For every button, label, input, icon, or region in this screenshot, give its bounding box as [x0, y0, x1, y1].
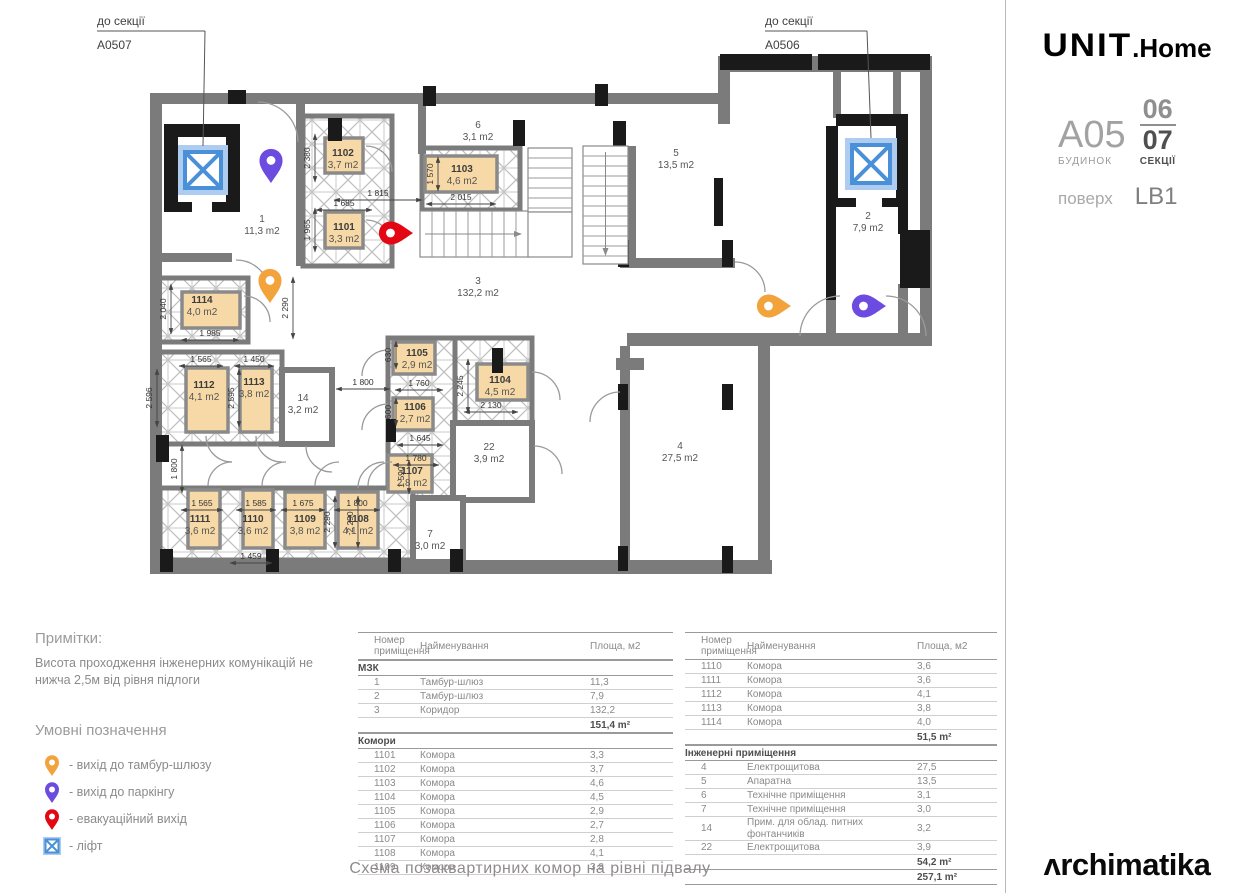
svg-text:13,5 m2: 13,5 m2	[658, 160, 695, 171]
svg-text:3,0 m2: 3,0 m2	[415, 541, 446, 552]
room-label: 427,5 m2	[662, 441, 699, 464]
svg-text:1108: 1108	[347, 514, 369, 525]
svg-text:2,9 m2: 2,9 m2	[402, 360, 433, 371]
table-row: 3Коридор132,2	[358, 704, 673, 718]
svg-text:2 245: 2 245	[455, 375, 465, 397]
table-header: Номер приміщенняНайменуванняПлоща, м2	[358, 632, 673, 660]
legend-item-label: - ліфт	[69, 839, 102, 853]
notes-block: Примітки: Висота проходження інженерних …	[35, 630, 345, 689]
svg-text:1 815: 1 815	[367, 188, 389, 198]
legend-item-tambour: - вихід до тамбур-шлюзу	[35, 751, 335, 778]
room-label: 3132,2 m2	[457, 276, 499, 299]
legend-item-evacuation: - евакуаційний вихід	[35, 805, 335, 832]
table-row: 1102Комора3,7	[358, 763, 673, 777]
svg-text:4,0 m2: 4,0 m2	[187, 307, 218, 318]
svg-text:1 675: 1 675	[292, 498, 314, 508]
svg-text:1 760: 1 760	[408, 378, 430, 388]
table-row: 5Апаратна13,5	[685, 775, 997, 789]
svg-text:5: 5	[673, 148, 679, 159]
rooms-table-left: Номер приміщенняНайменуванняПлоща, м2МЗК…	[358, 632, 673, 875]
svg-text:2 130: 2 130	[480, 400, 502, 410]
svg-text:1113: 1113	[243, 377, 265, 388]
table-row: 1110Комора3,6	[685, 660, 997, 674]
svg-text:1 565: 1 565	[190, 354, 212, 364]
brand-logo: UNIT.Home	[1006, 26, 1247, 66]
svg-text:2 015: 2 015	[450, 192, 472, 202]
svg-text:22: 22	[483, 442, 495, 453]
table-row: 1105Комора2,9	[358, 805, 673, 819]
section-number-bottom: 07	[1140, 126, 1176, 156]
table-total: 51,5 m²	[685, 730, 997, 745]
pin-orange-pin-icon	[258, 269, 281, 303]
svg-text:1 685: 1 685	[333, 198, 355, 208]
table-section: Інженерні приміщення	[685, 745, 997, 761]
svg-text:1: 1	[259, 214, 265, 225]
table-row: 6Технічне приміщення3,1	[685, 789, 997, 803]
building-code: A05	[1058, 116, 1126, 154]
svg-text:1104: 1104	[489, 375, 511, 386]
svg-text:3,8 m2: 3,8 m2	[290, 526, 321, 537]
table-section: МЗК	[358, 660, 673, 676]
table-row: 7Технічне приміщення3,0	[685, 803, 997, 817]
table-row: 1112Комора4,1	[685, 688, 997, 702]
table-row: 22Електрощитова3,9	[685, 841, 997, 855]
table-row: 1113Комора3,8	[685, 702, 997, 716]
table-row: 1114Комора4,0	[685, 716, 997, 730]
svg-text:1106: 1106	[404, 402, 426, 413]
svg-text:1102: 1102	[332, 148, 354, 159]
svg-text:1 800: 1 800	[169, 458, 179, 480]
svg-text:1110: 1110	[242, 514, 264, 525]
lift-icon	[35, 837, 69, 855]
lift-icon	[178, 145, 228, 195]
svg-text:6: 6	[475, 120, 481, 131]
svg-text:1101: 1101	[333, 222, 355, 233]
svg-text:7: 7	[427, 529, 433, 540]
svg-text:4,5 m2: 4,5 m2	[485, 387, 516, 398]
table-row: 1108Комора4,1	[358, 847, 673, 861]
table-row: 1101Комора3,3	[358, 749, 673, 763]
svg-text:до секції: до секції	[765, 14, 813, 28]
svg-text:3,9 m2: 3,9 m2	[474, 454, 505, 465]
evacuation-exit-pin-icon	[35, 807, 69, 831]
building-code-label: БУДИНОК	[1058, 156, 1126, 167]
dimension: 2 290	[280, 277, 293, 339]
table-header: Номер приміщенняНайменуванняПлоща, м2	[685, 632, 997, 660]
floor-value: LB1	[1135, 183, 1178, 211]
svg-text:2 290: 2 290	[322, 511, 332, 533]
svg-text:1 800: 1 800	[352, 377, 374, 387]
legend-item-parking: - вихід до паркінгу	[35, 778, 335, 805]
svg-text:3,3 m2: 3,3 m2	[329, 234, 360, 245]
svg-text:1109: 1109	[294, 514, 316, 525]
svg-text:4,6 m2: 4,6 m2	[447, 176, 478, 187]
svg-text:1 565: 1 565	[191, 498, 213, 508]
floor-label: поверх	[1058, 189, 1113, 209]
svg-text:27,5 m2: 27,5 m2	[662, 453, 699, 464]
svg-text:14: 14	[297, 393, 309, 404]
legend-title: Умовні позначення	[35, 722, 335, 739]
pin-orange-pin-icon	[757, 294, 791, 317]
table-row: 14Прим. для облад. питних фонтанчиків3,2	[685, 817, 997, 841]
room-label: 27,9 m2	[853, 211, 884, 234]
table-total: 151,4 m²	[358, 718, 673, 733]
sections-label: СЕКЦІЇ	[1140, 156, 1176, 167]
room-label: 111,3 m2	[244, 214, 280, 237]
svg-text:2 595: 2 595	[226, 387, 236, 409]
pin-purple-pin-icon	[852, 294, 886, 317]
svg-text:3: 3	[475, 276, 481, 287]
rooms-table-right: Номер приміщенняНайменуванняПлоща, м2111…	[685, 632, 997, 885]
svg-text:1 985: 1 985	[199, 328, 221, 338]
table-row: 1111Комора3,6	[685, 674, 997, 688]
svg-text:A0506: A0506	[765, 38, 800, 52]
table-row: 1106Комора2,7	[358, 819, 673, 833]
brand-unit: UNIT	[1042, 28, 1132, 65]
notes-body: Висота проходження інженерних комунікаці…	[35, 655, 345, 689]
svg-text:3,1 m2: 3,1 m2	[463, 132, 494, 143]
svg-text:1114: 1114	[191, 295, 213, 306]
table-row: 4Електрощитова27,5	[685, 761, 997, 775]
svg-text:1 570: 1 570	[425, 163, 435, 185]
room-label: 63,1 m2	[463, 120, 494, 143]
svg-text:1107: 1107	[401, 466, 423, 477]
pin-purple-pin-icon	[259, 149, 282, 183]
brand-home: .Home	[1132, 33, 1211, 63]
svg-text:4,1 m2: 4,1 m2	[189, 392, 220, 403]
legend-item-lift: - ліфт	[35, 832, 335, 859]
svg-text:1 585: 1 585	[245, 498, 267, 508]
svg-text:1 450: 1 450	[243, 354, 265, 364]
svg-text:3,7 m2: 3,7 m2	[328, 160, 359, 171]
svg-text:630: 630	[383, 348, 393, 362]
svg-text:1112: 1112	[193, 380, 215, 391]
svg-text:2 596: 2 596	[144, 387, 154, 409]
lift-icon	[845, 138, 897, 190]
svg-text:1 965: 1 965	[302, 219, 312, 241]
svg-text:1105: 1105	[406, 348, 428, 359]
notes-title: Примітки:	[35, 630, 345, 647]
sheet-caption: Схема позаквартирних комор на рівні підв…	[270, 860, 790, 878]
svg-text:132,2 m2: 132,2 m2	[457, 288, 499, 299]
svg-text:1111: 1111	[190, 514, 211, 525]
legend-item-label: - вихід до паркінгу	[69, 785, 174, 799]
svg-text:4: 4	[677, 441, 683, 452]
tambour-exit-pin-icon	[35, 753, 69, 777]
stair-landing	[528, 212, 572, 257]
table-row: 1Тамбур-шлюз11,3	[358, 676, 673, 690]
svg-text:2,7 m2: 2,7 m2	[400, 414, 431, 425]
svg-text:7,9 m2: 7,9 m2	[853, 223, 884, 234]
legend-item-label: - вихід до тамбур-шлюзу	[69, 758, 211, 772]
svg-text:2 040: 2 040	[158, 298, 168, 320]
dimension: 1 800	[336, 377, 390, 389]
svg-text:2 290: 2 290	[280, 297, 290, 319]
table-row: 1104Комора4,5	[358, 791, 673, 805]
table-row: 1107Комора2,8	[358, 833, 673, 847]
table-row: 2Тамбур-шлюз7,9	[358, 690, 673, 704]
svg-text:3,6 m2: 3,6 m2	[185, 526, 216, 537]
legend-item-label: - евакуаційний вихід	[69, 812, 187, 826]
room-label: 513,5 m2	[658, 148, 695, 171]
svg-text:3,6 m2: 3,6 m2	[238, 526, 269, 537]
svg-text:1 459: 1 459	[240, 551, 262, 561]
building-info: A05 БУДИНОК 06 07 СЕКЦІЇ поверх LB1	[1058, 96, 1218, 211]
svg-text:600: 600	[383, 405, 393, 419]
svg-text:3,8 m2: 3,8 m2	[239, 389, 270, 400]
table-section: Комори	[358, 733, 673, 749]
architect-logo: ʌrchimatika	[1006, 847, 1247, 883]
svg-text:1 800: 1 800	[346, 498, 368, 508]
title-sidebar: UNIT.Home A05 БУДИНОК 06 07 СЕКЦІЇ повер…	[1005, 0, 1247, 893]
svg-text:2,8 m2: 2,8 m2	[397, 478, 428, 489]
svg-text:1 645: 1 645	[409, 433, 431, 443]
svg-text:2: 2	[865, 211, 871, 222]
table-row: 1103Комора4,6	[358, 777, 673, 791]
section-number-top: 06	[1140, 96, 1176, 126]
drawing-sheet: 1 8151 5702 0151 6852 3801 9652 0401 985…	[0, 0, 1247, 893]
svg-text:11,3 m2: 11,3 m2	[244, 226, 280, 237]
floor-plan: 1 8151 5702 0151 6852 3801 9652 0401 985…	[0, 0, 1005, 625]
svg-text:4,1 m2: 4,1 m2	[343, 526, 374, 537]
svg-text:2 380: 2 380	[302, 147, 312, 169]
legend-block: Умовні позначення - вихід до тамбур-шлюз…	[35, 722, 335, 859]
svg-text:A0507: A0507	[97, 38, 132, 52]
svg-text:3,2 m2: 3,2 m2	[288, 405, 319, 416]
parking-exit-pin-icon	[35, 780, 69, 804]
svg-text:1103: 1103	[451, 164, 473, 175]
svg-text:до секції: до секції	[97, 14, 145, 28]
pin-red-pin-icon	[379, 221, 413, 244]
